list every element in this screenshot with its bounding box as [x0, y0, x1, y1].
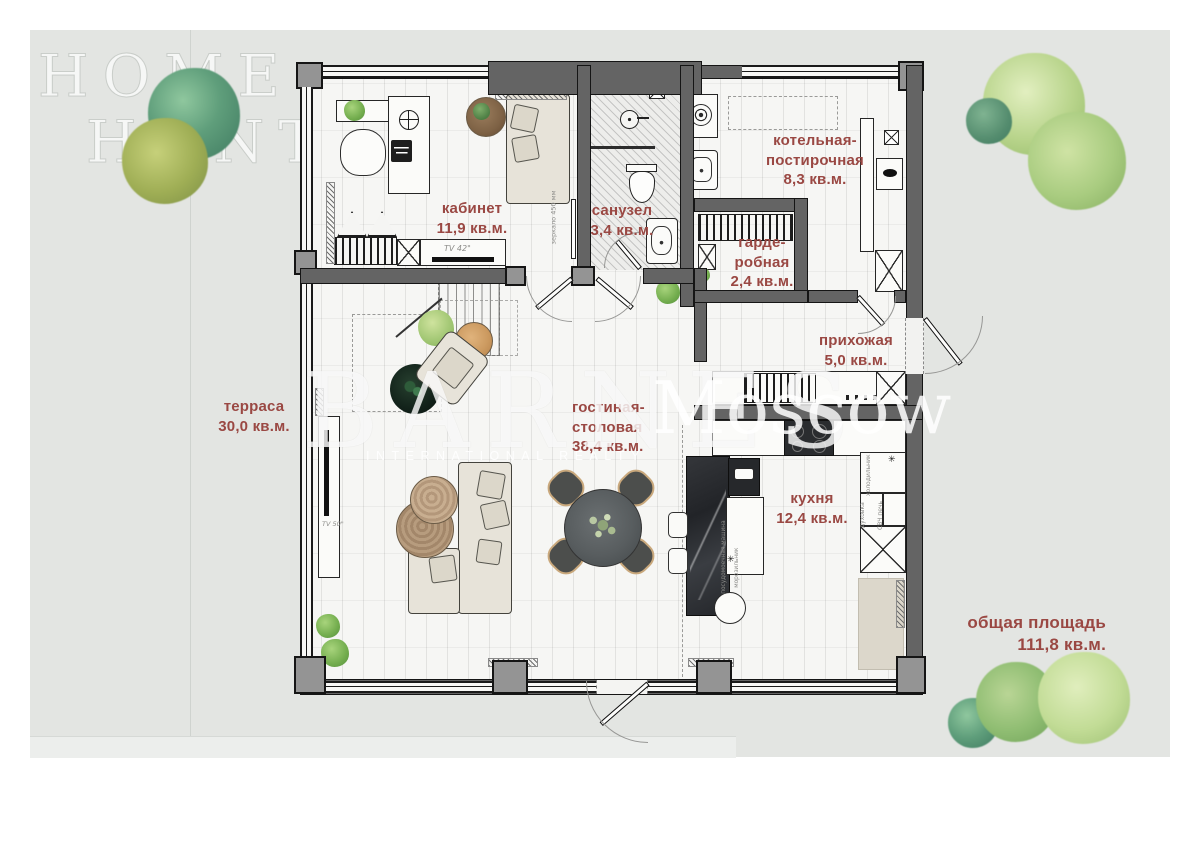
tv42-annotation: TV 42" [444, 245, 471, 253]
window [326, 681, 492, 693]
radiator [326, 182, 335, 264]
window [300, 273, 313, 660]
cabinet-x [397, 239, 420, 266]
tv50-annotation: TV 50" [322, 521, 344, 528]
burner [812, 424, 827, 439]
burner [792, 441, 803, 452]
door-pillar [505, 266, 526, 286]
room-label-hallway: прихожая 5,0 кв.м. [794, 331, 918, 370]
dining-table-plant [580, 505, 624, 549]
microwave-cell [883, 493, 906, 526]
window [300, 87, 313, 253]
hallway-hanging-clothes [744, 373, 816, 403]
wall [694, 198, 808, 212]
living-tv [324, 430, 329, 516]
office-tv [432, 257, 494, 262]
living-plant [316, 614, 340, 638]
coffee-table-small [410, 476, 458, 524]
wall [694, 268, 707, 362]
living-tv-console [318, 416, 340, 578]
fridge-annotation: холодильник [866, 440, 872, 496]
office-side-table-plant [473, 103, 490, 120]
room-label-terrace: терраса 30,0 кв.м. [182, 397, 326, 436]
sofa-pillow [510, 104, 540, 134]
sofa-pillow [428, 554, 457, 583]
cooktop [784, 420, 834, 456]
wall [906, 373, 923, 695]
island-stool [668, 548, 688, 574]
office-plant [344, 100, 365, 121]
room-label-office: кабинет 11,9 кв.м. [397, 199, 547, 238]
tree [1038, 652, 1130, 744]
sofa-pillow [511, 134, 540, 163]
cabinet-x [875, 250, 903, 292]
wall [694, 290, 808, 303]
microwave-annotation: СВЧ печь [878, 486, 884, 530]
freezer-annotation: морозильник [735, 530, 741, 588]
window [732, 681, 900, 693]
wall [300, 268, 507, 284]
wall [643, 268, 694, 284]
total-area-label: общая площадь 111,8 кв.м. [940, 612, 1106, 656]
wall [906, 65, 923, 320]
snowflake-icon: ✳ [888, 456, 896, 465]
burner [791, 425, 804, 438]
boiler-sink-bowl [691, 157, 712, 182]
shower-arm [637, 117, 649, 119]
window [528, 681, 596, 693]
corner-pillar [296, 62, 323, 89]
desk-printer [391, 140, 412, 162]
room-label-wardrobe: гарде- робная 2,4 кв.м. [710, 233, 814, 292]
room-label-kitchen: кухня 12,4 кв.м. [750, 489, 874, 528]
door-pillar [571, 266, 595, 286]
wall [694, 405, 923, 420]
wall [808, 290, 858, 303]
office-chair [340, 129, 386, 176]
island-sink [734, 468, 754, 480]
wall [577, 65, 591, 272]
tree [966, 98, 1012, 144]
snowflake-icon: ✳ [727, 556, 735, 565]
tree [1028, 112, 1126, 210]
desk-target-icon [399, 110, 419, 130]
sofa-pillow [476, 470, 506, 500]
shower-partition [591, 146, 655, 149]
cabinet-x [876, 371, 906, 405]
wall [488, 61, 702, 95]
cabinet-x [860, 526, 906, 573]
facade-pillar [294, 656, 326, 694]
room-label-living: гостиная- столовая 38,4 кв.м. [572, 398, 702, 457]
facade-pillar [696, 660, 732, 694]
closet-hanging-clothes [334, 237, 397, 265]
room-label-bathroom: санузел 3,4 кв.м. [562, 201, 682, 240]
facade-pillar [896, 656, 926, 694]
facade-pillar [492, 660, 528, 694]
island-stool [668, 512, 688, 538]
tree [122, 118, 208, 204]
sofa-pillow [475, 538, 502, 565]
burner [813, 440, 826, 453]
shower-head [620, 110, 639, 129]
mirror-annotation: зеркало 450 мм [551, 161, 558, 245]
window [648, 681, 698, 693]
room-label-boiler: котельная- постирочная 8,3 кв.м. [733, 131, 897, 190]
window [322, 65, 488, 78]
floor-plan-canvas: HOME HUNTER TV 42" зеркало 450 мм [0, 0, 1200, 848]
window [742, 65, 902, 78]
boiler-counter-outline [728, 96, 838, 130]
dishwasher-annotation: посудомоечная машина [722, 502, 728, 594]
sofa-pillow [480, 500, 511, 531]
radiator [896, 580, 905, 628]
island-round-stool [714, 592, 746, 624]
